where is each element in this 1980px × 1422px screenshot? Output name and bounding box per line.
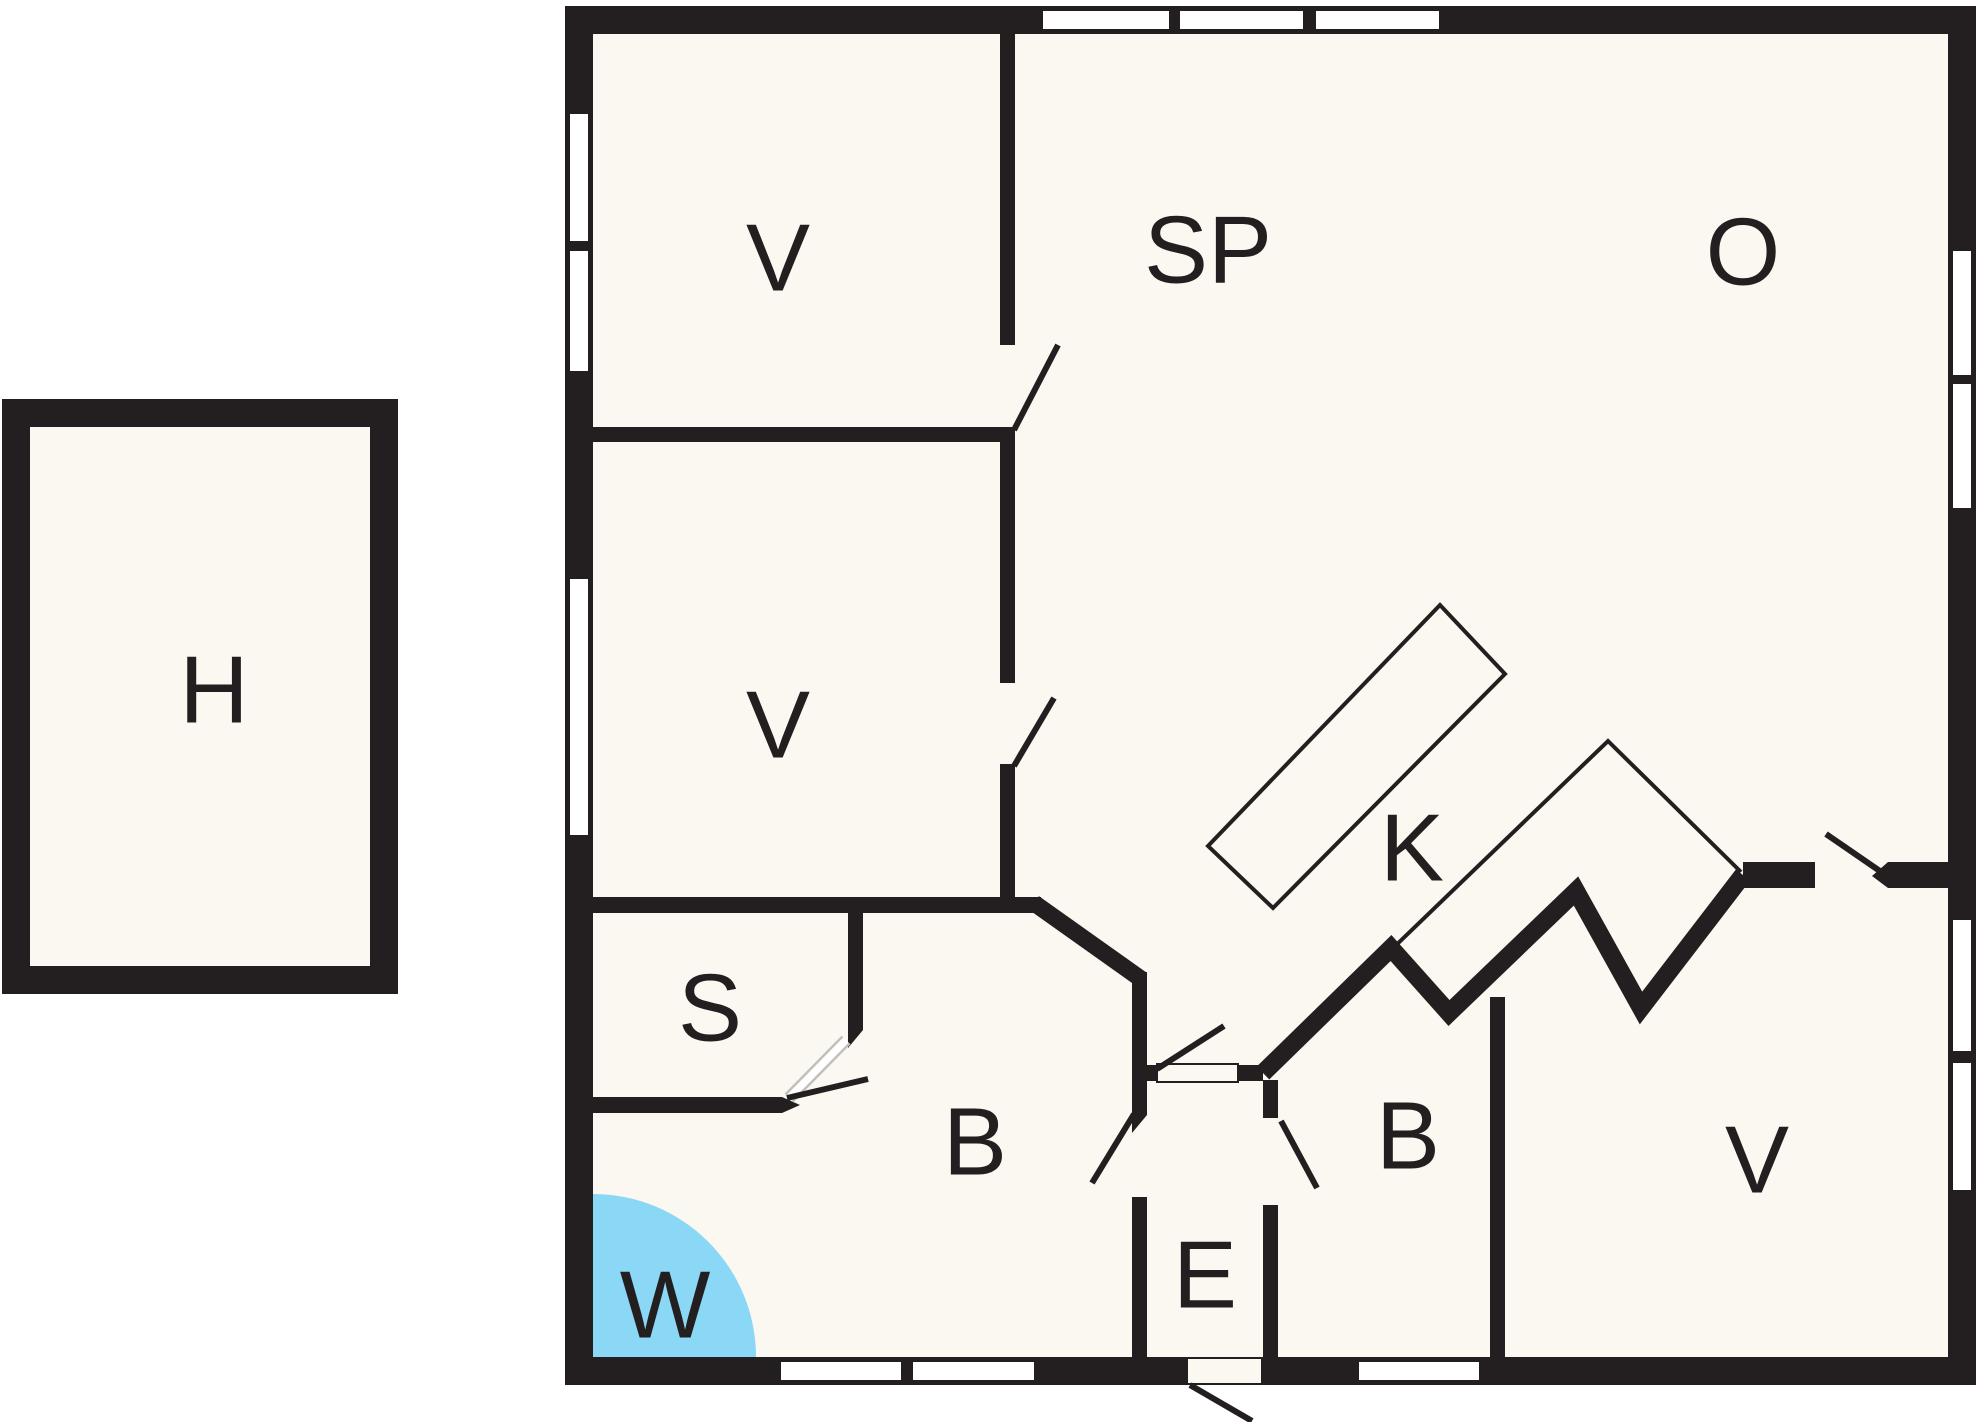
room-label-sp: SP <box>1144 197 1272 304</box>
wall-s-b-divider <box>848 913 863 1030</box>
annex-wall-right <box>370 399 398 994</box>
room-label-v-mid: V <box>746 672 810 779</box>
window-bottom-1 <box>780 1361 902 1381</box>
window-left-2 <box>569 250 589 372</box>
room-label-b-left: B <box>943 1089 1007 1196</box>
floor-plan-drawing: HVSPOVKSBEBVW <box>0 0 1980 1422</box>
window-bottom-2 <box>912 1361 1035 1381</box>
room-label-w: W <box>620 1252 711 1359</box>
door-leaf-entry <box>1190 1385 1252 1421</box>
floor-plan-canvas: HVSPOVKSBEBVW <box>0 0 1980 1422</box>
annex-wall-bottom <box>2 966 398 994</box>
room-label-o: O <box>1706 199 1781 306</box>
window-top-1 <box>1042 10 1170 30</box>
window-top-3 <box>1315 10 1440 30</box>
wall-e-left-seg1 <box>1132 972 1147 1115</box>
wall-v-right-seg1 <box>1743 862 1815 888</box>
window-top-2 <box>1179 10 1304 30</box>
room-label-h: H <box>179 637 248 744</box>
window-left-3 <box>569 578 589 836</box>
wall-v-v-divider <box>593 427 1015 442</box>
room-label-e: E <box>1173 1222 1237 1329</box>
room-label-v-top: V <box>746 205 810 312</box>
wall-v-right-seg2 <box>1888 862 1948 888</box>
wall-divider-seg3 <box>1000 764 1015 913</box>
wall-e-left-seg2 <box>1132 1197 1147 1357</box>
wall-divider-seg2 <box>1000 428 1015 683</box>
window-left-1 <box>569 113 589 242</box>
wall-s-top <box>593 897 1041 913</box>
room-label-s: S <box>678 955 742 1062</box>
window-right-2 <box>1952 383 1972 509</box>
wall-e-top-seg1 <box>1147 1065 1157 1081</box>
wall-e-right-seg2 <box>1263 1205 1278 1357</box>
annex-wall-left <box>2 399 30 994</box>
wall-b-v-divider <box>1490 997 1505 1357</box>
wall-divider-seg1 <box>1000 34 1015 345</box>
opening-e-top <box>1157 1064 1238 1082</box>
window-right-4 <box>1952 1062 1972 1191</box>
window-right-3 <box>1952 919 1972 1052</box>
main-wall-bottom <box>565 1357 1976 1385</box>
window-right-1 <box>1952 250 1972 376</box>
wall-s-bottom <box>593 1097 782 1113</box>
window-bottom-3 <box>1358 1361 1480 1381</box>
room-label-k: K <box>1380 795 1444 902</box>
opening-entry-door <box>1187 1358 1262 1384</box>
room-label-v-bottom: V <box>1725 1107 1789 1214</box>
annex-wall-top <box>2 399 398 427</box>
wall-e-right-seg1 <box>1263 1080 1278 1118</box>
room-label-b-right: B <box>1376 1083 1440 1190</box>
